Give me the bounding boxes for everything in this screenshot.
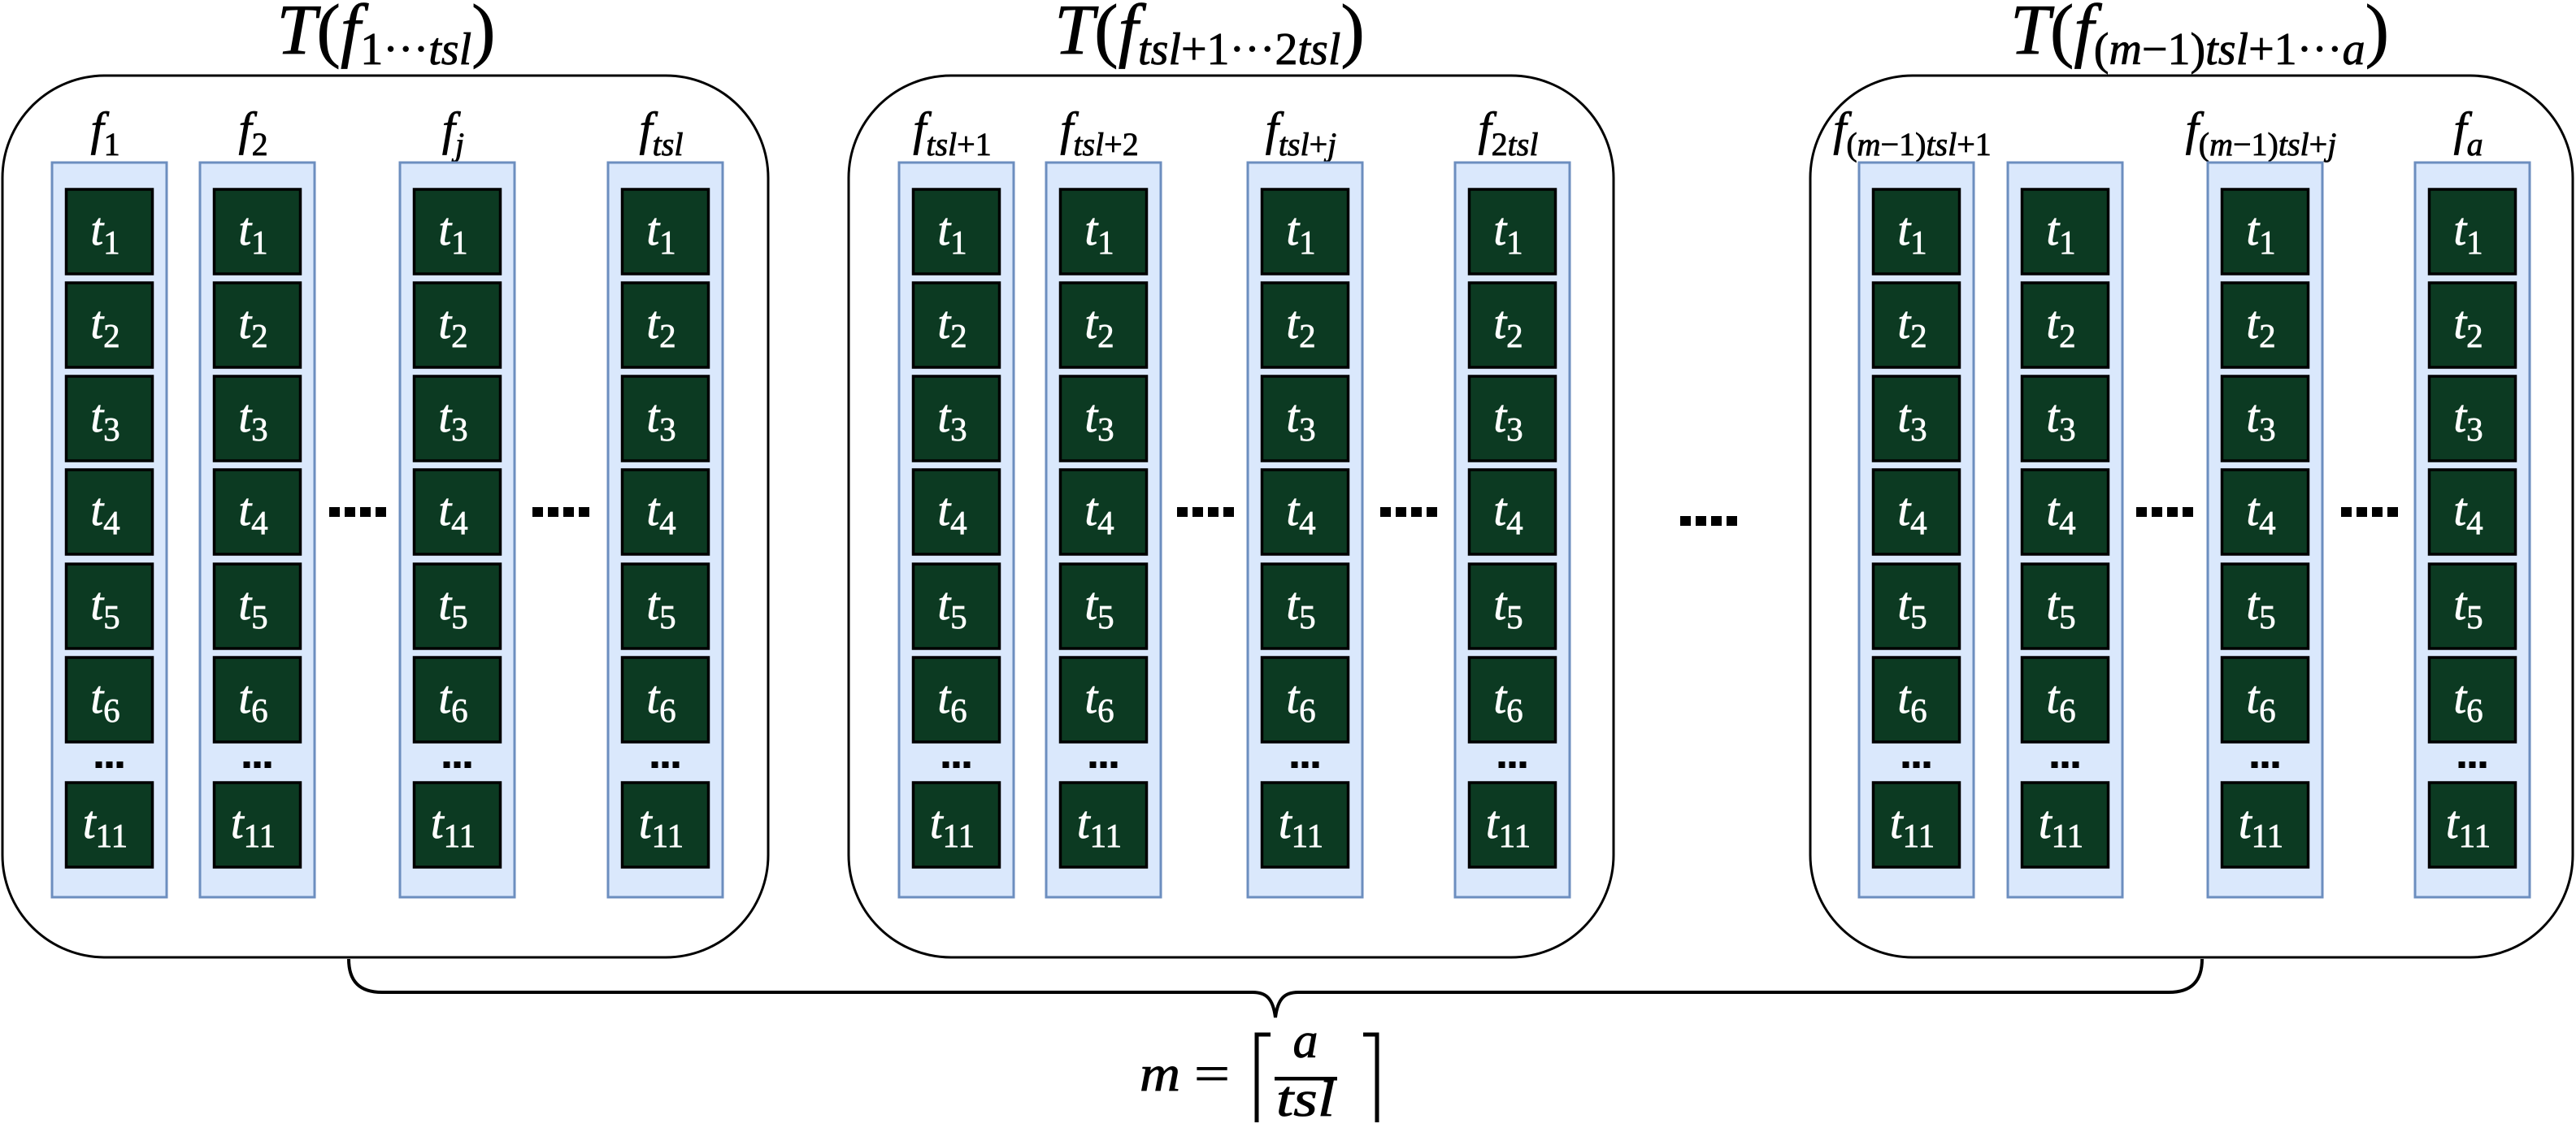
svg-text:tsl: tsl xyxy=(1276,1072,1335,1127)
svg-text:m: m xyxy=(1140,1047,1180,1102)
svg-text:a: a xyxy=(1293,1013,1318,1069)
svg-text:=: = xyxy=(1194,1047,1230,1102)
